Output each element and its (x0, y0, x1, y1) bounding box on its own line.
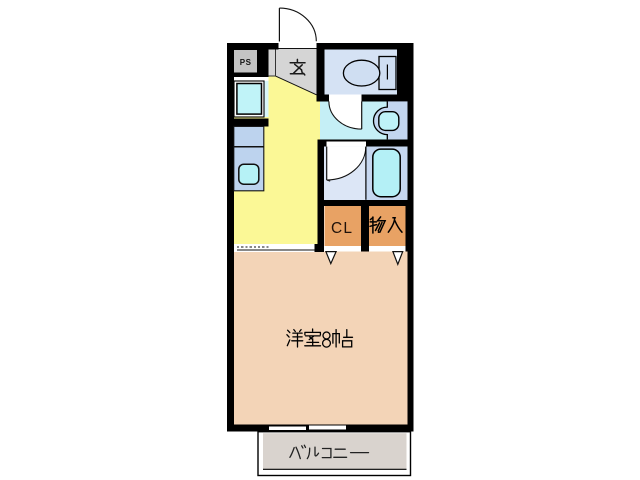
svg-text:PS: PS (240, 58, 252, 67)
svg-text:CL: CL (331, 220, 353, 237)
